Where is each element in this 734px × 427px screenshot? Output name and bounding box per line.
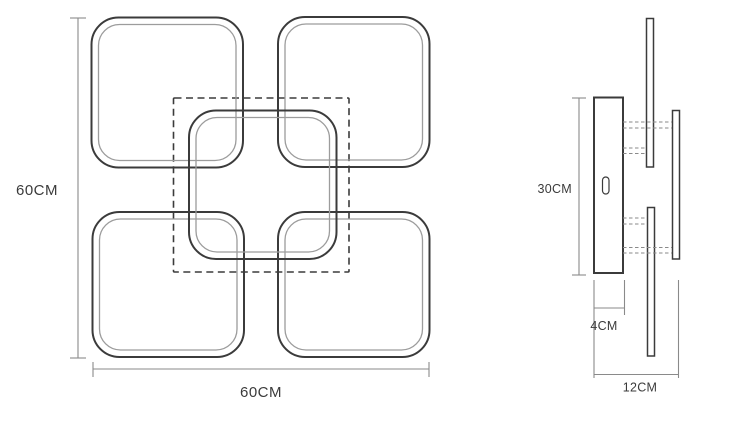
ring-bottom-right-inner-edge: [285, 219, 423, 350]
dim-side-view-total-depth: 12CM: [594, 280, 679, 395]
light-panel-lower: [648, 208, 655, 357]
ring-center: [189, 111, 337, 260]
ring-bottom-left: [93, 212, 245, 357]
dim-top-view-height: 60CM: [16, 18, 86, 358]
lamp-dimension-diagram: 60CM 60CM: [0, 0, 734, 427]
side-view: 30CM 4CM 12CM: [537, 19, 679, 395]
ring-top-left-inner-edge: [99, 25, 237, 161]
light-panel-upper: [647, 19, 654, 168]
ring-bottom-right-outer-edge: [278, 212, 430, 357]
dim-label-side-view-total-depth: 12CM: [623, 381, 658, 395]
light-panel-middle: [673, 111, 680, 260]
ring-top-left: [92, 18, 244, 168]
ring-bottom-left-outer-edge: [93, 212, 245, 357]
dim-label-side-view-base-depth: 4CM: [590, 319, 617, 333]
diagram-canvas: 60CM 60CM: [0, 0, 734, 427]
dim-label-top-view-width: 60CM: [240, 384, 282, 401]
ring-center-inner-edge: [196, 118, 330, 253]
ring-top-right: [278, 17, 430, 167]
dim-label-top-view-height: 60CM: [16, 182, 58, 199]
dim-top-view-width: 60CM: [93, 362, 429, 401]
ring-bottom-left-inner-edge: [100, 219, 238, 350]
ring-top-right-outer-edge: [278, 17, 430, 167]
dim-side-view-height: 30CM: [537, 98, 586, 275]
top-view: 60CM 60CM: [16, 17, 430, 401]
ring-top-right-inner-edge: [285, 24, 423, 160]
dim-side-view-base-depth: 4CM: [590, 280, 624, 378]
dim-label-side-view-height: 30CM: [537, 182, 572, 196]
ring-bottom-right: [278, 212, 430, 357]
ring-center-outer-edge: [189, 111, 337, 260]
ring-top-left-outer-edge: [92, 18, 244, 168]
